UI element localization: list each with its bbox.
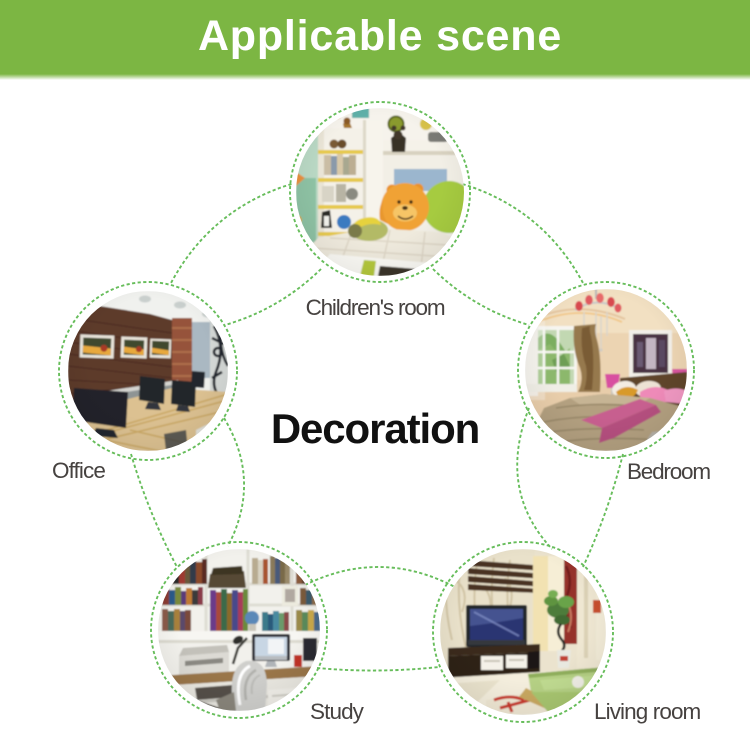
svg-text:Applicable scene: Applicable scene	[198, 12, 562, 60]
svg-text:Bedroom: Bedroom	[627, 459, 710, 484]
svg-text:Study: Study	[310, 699, 365, 724]
svg-text:Living room: Living room	[594, 699, 701, 724]
svg-text:Children's room: Children's room	[306, 295, 445, 320]
svg-text:Office: Office	[52, 458, 105, 483]
svg-text:Decoration: Decoration	[271, 405, 479, 452]
